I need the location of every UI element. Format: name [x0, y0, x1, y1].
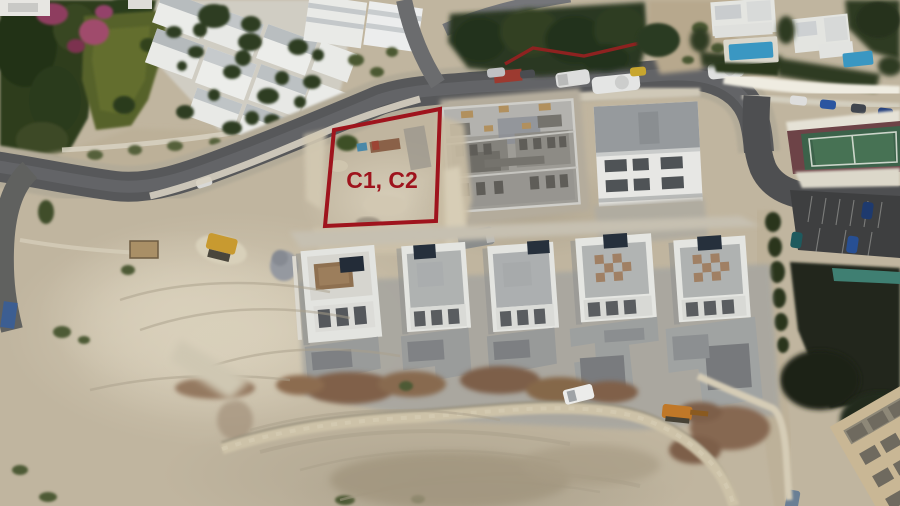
svg-text:C1, C2: C1, C2 [346, 167, 418, 193]
